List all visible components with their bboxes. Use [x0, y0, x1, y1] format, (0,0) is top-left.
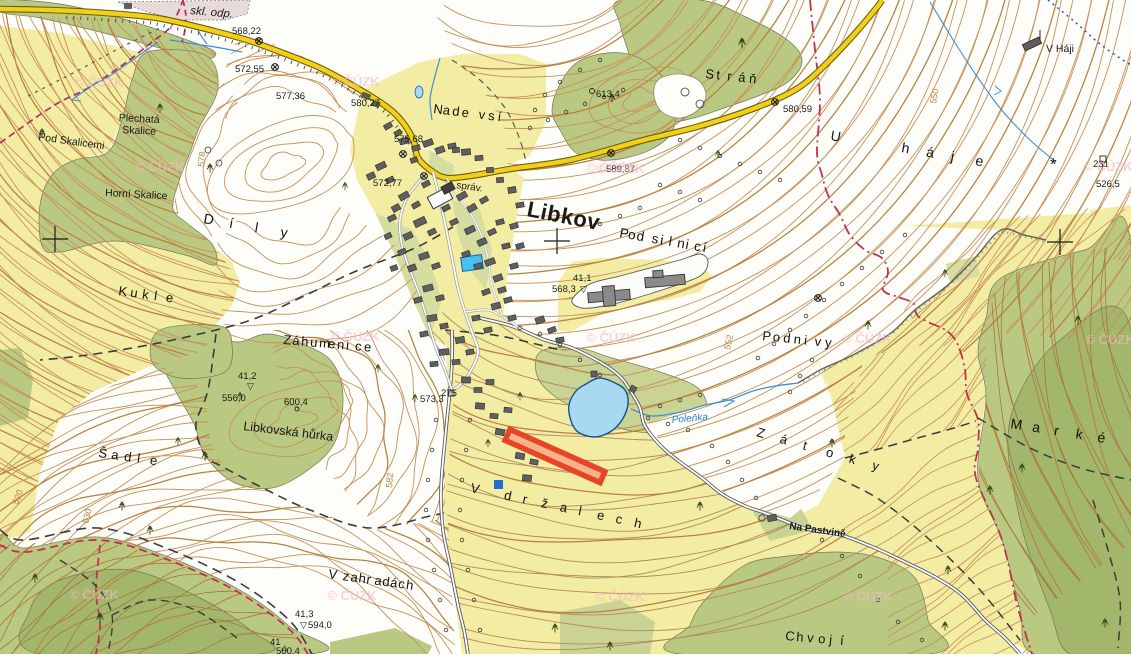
- svg-text:V Háji: V Háji: [1046, 43, 1074, 55]
- svg-text:572,77: 572,77: [373, 178, 402, 189]
- svg-text:▽: ▽: [247, 381, 254, 391]
- svg-text:556,0: 556,0: [222, 393, 246, 404]
- svg-text:578: 578: [196, 151, 207, 167]
- svg-text:568,22: 568,22: [232, 26, 261, 37]
- svg-text:ň: ň: [748, 71, 757, 87]
- svg-text:h: h: [301, 334, 310, 350]
- svg-text:© ČÚZK: © ČÚZK: [1083, 159, 1131, 174]
- svg-text:582: 582: [384, 472, 395, 488]
- svg-text:© ČÚZK: © ČÚZK: [330, 329, 380, 344]
- svg-text:© ČÚZK: © ČÚZK: [69, 587, 119, 602]
- svg-text:613,4: 613,4: [596, 89, 620, 100]
- svg-text:41,3: 41,3: [295, 609, 314, 620]
- svg-text:▽: ▽: [580, 284, 587, 294]
- svg-text:△: △: [282, 643, 289, 652]
- svg-text:600,4: 600,4: [284, 397, 308, 408]
- svg-text:P: P: [762, 328, 772, 344]
- svg-text:© ČÚZK: © ČÚZK: [135, 159, 185, 174]
- svg-text:C: C: [785, 628, 796, 644]
- svg-text:u: u: [310, 334, 319, 350]
- svg-text:594,0: 594,0: [308, 620, 332, 631]
- svg-text:Skalice: Skalice: [122, 124, 157, 138]
- svg-text:© ČÚZK: © ČÚZK: [595, 589, 645, 604]
- svg-text:o: o: [818, 631, 827, 647]
- svg-text:© ČÚZK: © ČÚZK: [843, 589, 893, 604]
- svg-text:577,36: 577,36: [276, 91, 305, 102]
- svg-text:575,68: 575,68: [394, 134, 423, 145]
- svg-text:© ČÚZK: © ČÚZK: [74, 75, 124, 90]
- svg-text:© ČÚZK: © ČÚZK: [842, 331, 892, 346]
- svg-text:M: M: [1010, 415, 1024, 433]
- svg-text:© ČÚZK: © ČÚZK: [1085, 332, 1131, 347]
- svg-text:*: *: [1050, 155, 1057, 174]
- svg-text:572,55: 572,55: [235, 64, 264, 75]
- svg-text:© ČÚZK: © ČÚZK: [330, 74, 380, 89]
- svg-text:© ČÚZK: © ČÚZK: [595, 161, 645, 176]
- svg-text:568,3: 568,3: [552, 284, 576, 295]
- svg-text:526,5: 526,5: [1096, 179, 1120, 190]
- svg-text:h: h: [796, 629, 805, 645]
- svg-text:580,59: 580,59: [783, 104, 812, 115]
- svg-text:41,1: 41,1: [573, 273, 592, 284]
- svg-text:© ČÚZK: © ČÚZK: [586, 330, 636, 345]
- svg-text:© ČÚZK: © ČÚZK: [327, 588, 377, 603]
- svg-text:▽: ▽: [300, 620, 307, 630]
- svg-text:580,27: 580,27: [351, 98, 380, 109]
- svg-text:o: o: [772, 329, 781, 345]
- svg-text:Z: Z: [283, 332, 292, 348]
